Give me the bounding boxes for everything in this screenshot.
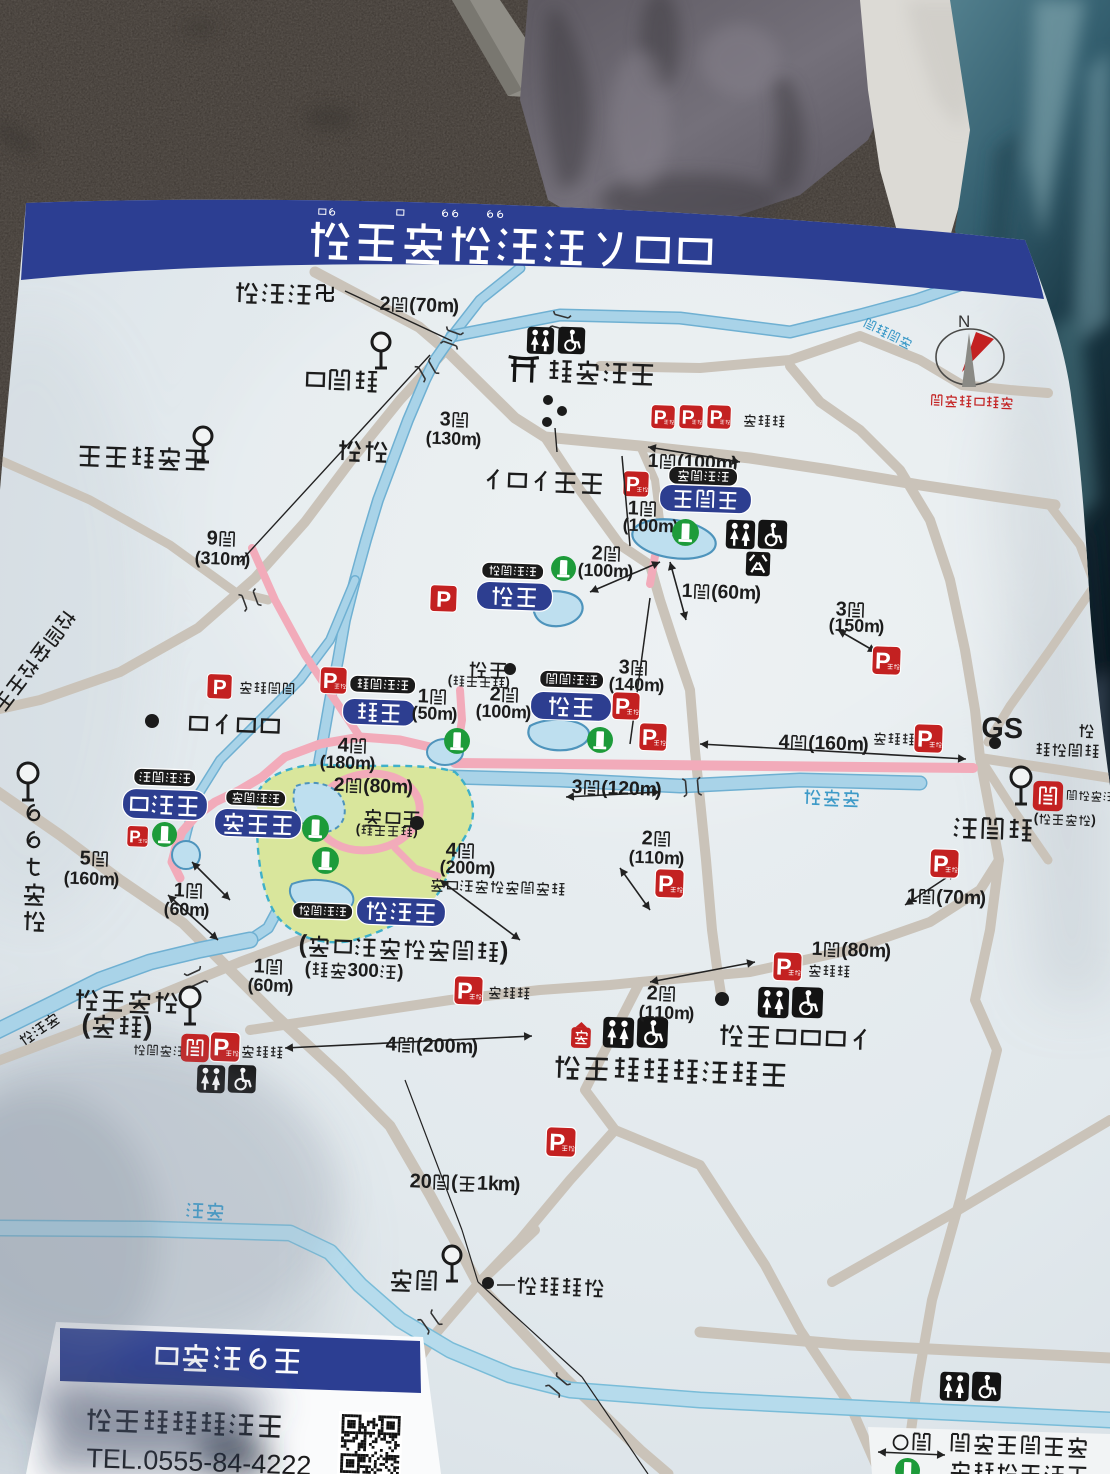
svg-text:5: 5	[79, 847, 91, 869]
svg-text:(: (	[451, 1172, 459, 1194]
svg-text:): )	[884, 940, 891, 962]
svg-text:): )	[655, 779, 662, 801]
svg-text:1: 1	[647, 450, 659, 472]
svg-text:2: 2	[409, 1170, 421, 1192]
svg-text:1: 1	[681, 580, 693, 602]
svg-text:): )	[754, 582, 761, 604]
svg-text:0: 0	[420, 1171, 432, 1193]
svg-text:N: N	[958, 312, 970, 331]
svg-text:2: 2	[379, 293, 391, 315]
svg-text:0: 0	[368, 961, 379, 982]
svg-text:): )	[658, 675, 665, 695]
svg-text:GS: GS	[981, 712, 1024, 745]
svg-text:): )	[143, 1010, 153, 1041]
svg-text:3: 3	[347, 960, 358, 981]
svg-text:): )	[489, 858, 496, 878]
svg-text:4: 4	[778, 731, 790, 753]
svg-text:1: 1	[477, 1173, 489, 1195]
svg-text:3: 3	[571, 776, 583, 798]
svg-text:): )	[979, 887, 986, 909]
svg-text:1: 1	[906, 885, 918, 907]
svg-text:9: 9	[206, 527, 218, 549]
svg-text:0: 0	[433, 1035, 445, 1057]
svg-text:): )	[451, 704, 458, 724]
svg-text:): )	[203, 900, 210, 920]
svg-text:0: 0	[444, 1035, 456, 1057]
svg-text:): )	[688, 1003, 695, 1023]
svg-text:): )	[475, 429, 482, 449]
svg-text:0: 0	[629, 778, 641, 800]
svg-text:): )	[500, 937, 509, 965]
svg-text:): )	[878, 616, 885, 636]
svg-text:): )	[1091, 812, 1096, 827]
svg-text:): )	[113, 869, 120, 889]
svg-text:): )	[678, 848, 685, 868]
svg-text:2: 2	[333, 774, 345, 796]
svg-text:): )	[406, 776, 413, 798]
svg-text:): )	[627, 561, 634, 581]
svg-text:): )	[244, 549, 251, 569]
svg-text:): )	[452, 295, 459, 317]
svg-text:0: 0	[836, 733, 848, 755]
svg-text:2: 2	[422, 1034, 434, 1056]
svg-text:1: 1	[811, 938, 823, 960]
svg-text:4: 4	[385, 1033, 397, 1055]
svg-text:): )	[397, 962, 404, 983]
svg-text:): )	[471, 1036, 478, 1058]
svg-text:): )	[369, 753, 376, 773]
svg-text:(: (	[298, 930, 308, 958]
svg-text:): )	[513, 1174, 520, 1196]
svg-text:): )	[862, 734, 869, 756]
svg-text:): )	[287, 976, 294, 996]
